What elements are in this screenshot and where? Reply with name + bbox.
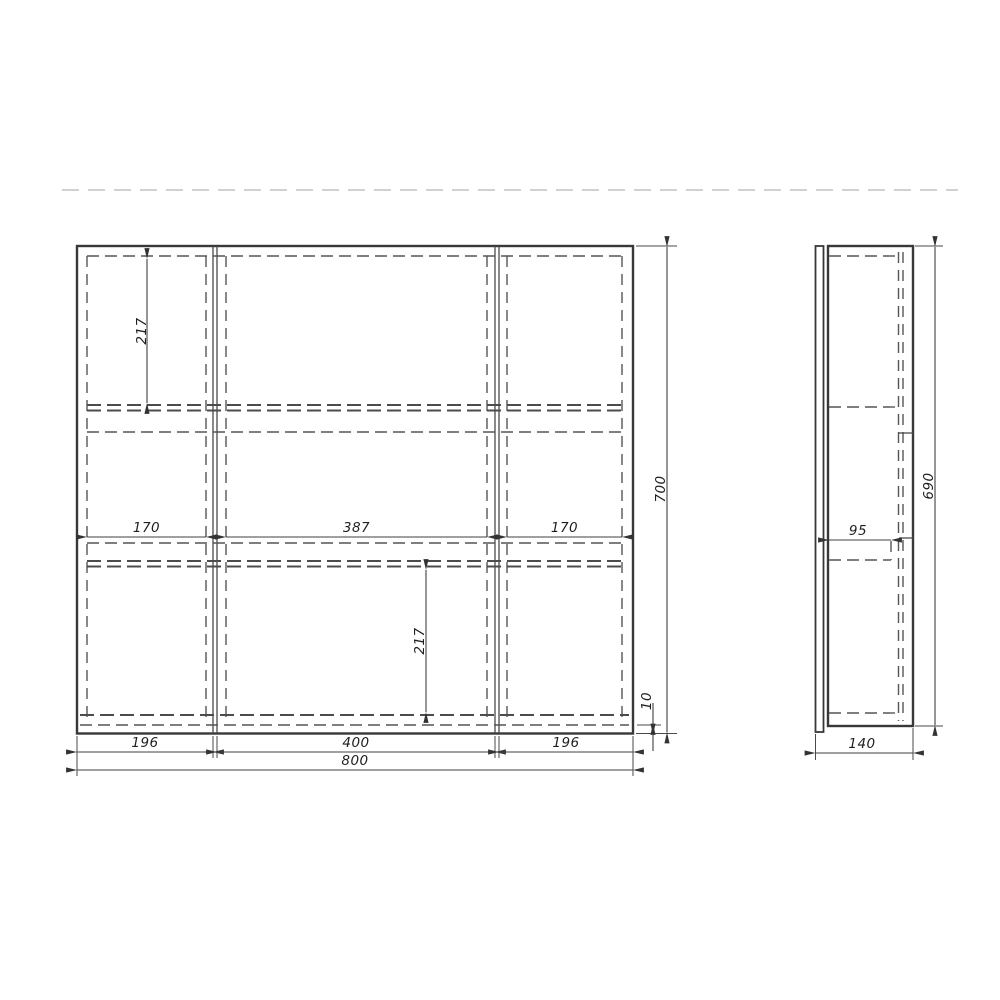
dim-label-lower-217: 217 (412, 627, 428, 654)
front-cabinet-outline (77, 246, 633, 734)
dim-total-width: 800 (77, 753, 633, 770)
side-hidden-horizontals (829, 256, 897, 713)
dim-label-inner-left: 170 (133, 520, 160, 536)
dim-lower-section-height: 217 (412, 570, 428, 712)
front-view: 217 170 387 170 217 700 10 (77, 246, 677, 776)
side-niche-joints (899, 433, 913, 538)
front-door-dividers (213, 246, 499, 733)
dim-carcass-height: 690 (915, 246, 943, 726)
technical-drawing-canvas: 217 170 387 170 217 700 10 (0, 0, 1000, 1000)
dim-label-140: 140 (848, 736, 875, 752)
front-hidden-vertical-edges (87, 256, 622, 723)
side-door-profile (816, 246, 824, 732)
dim-label-upper-217: 217 (134, 317, 150, 344)
dim-total-height: 700 (636, 246, 677, 734)
dim-label-700: 700 (653, 475, 669, 502)
front-hidden-horizontal-edges (80, 256, 629, 725)
dim-door-widths: 196 400 196 (77, 735, 633, 752)
dim-label-door-mid: 400 (342, 735, 369, 751)
dim-shelf-depth: 95 (829, 523, 891, 540)
side-carcass-outline (828, 246, 913, 726)
dim-label-95: 95 (849, 523, 867, 539)
dim-depth: 140 (816, 728, 914, 760)
dim-label-inner-mid: 387 (343, 520, 370, 536)
dim-label-10: 10 (639, 692, 655, 710)
dim-inner-widths: 170 387 170 (87, 520, 622, 537)
dim-label-door-right: 196 (552, 735, 579, 751)
cabinet-dimension-drawing: 217 170 387 170 217 700 10 (0, 0, 1000, 1000)
dim-label-690: 690 (921, 472, 937, 499)
dim-upper-section-height: 217 (134, 259, 150, 403)
dim-label-inner-right: 170 (551, 520, 578, 536)
dim-label-door-left: 196 (131, 735, 158, 751)
dim-bottom-offset: 10 (637, 692, 661, 751)
side-hidden-back-panel (899, 252, 904, 721)
dim-label-800: 800 (341, 753, 368, 769)
side-view: 95 690 140 (816, 246, 944, 760)
